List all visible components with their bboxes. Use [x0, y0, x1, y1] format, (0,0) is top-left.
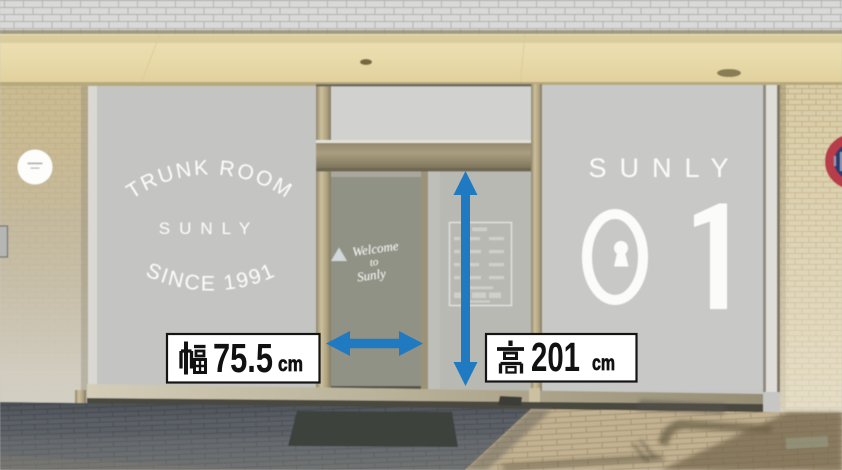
svg-text:201: 201 — [531, 334, 580, 380]
svg-text:cm: cm — [592, 352, 615, 375]
svg-text:cm: cm — [278, 353, 303, 376]
svg-text:SUNLY: SUNLY — [159, 219, 259, 238]
svg-text:75.5: 75.5 — [213, 335, 273, 381]
svg-text:SUNLY: SUNLY — [588, 153, 741, 183]
